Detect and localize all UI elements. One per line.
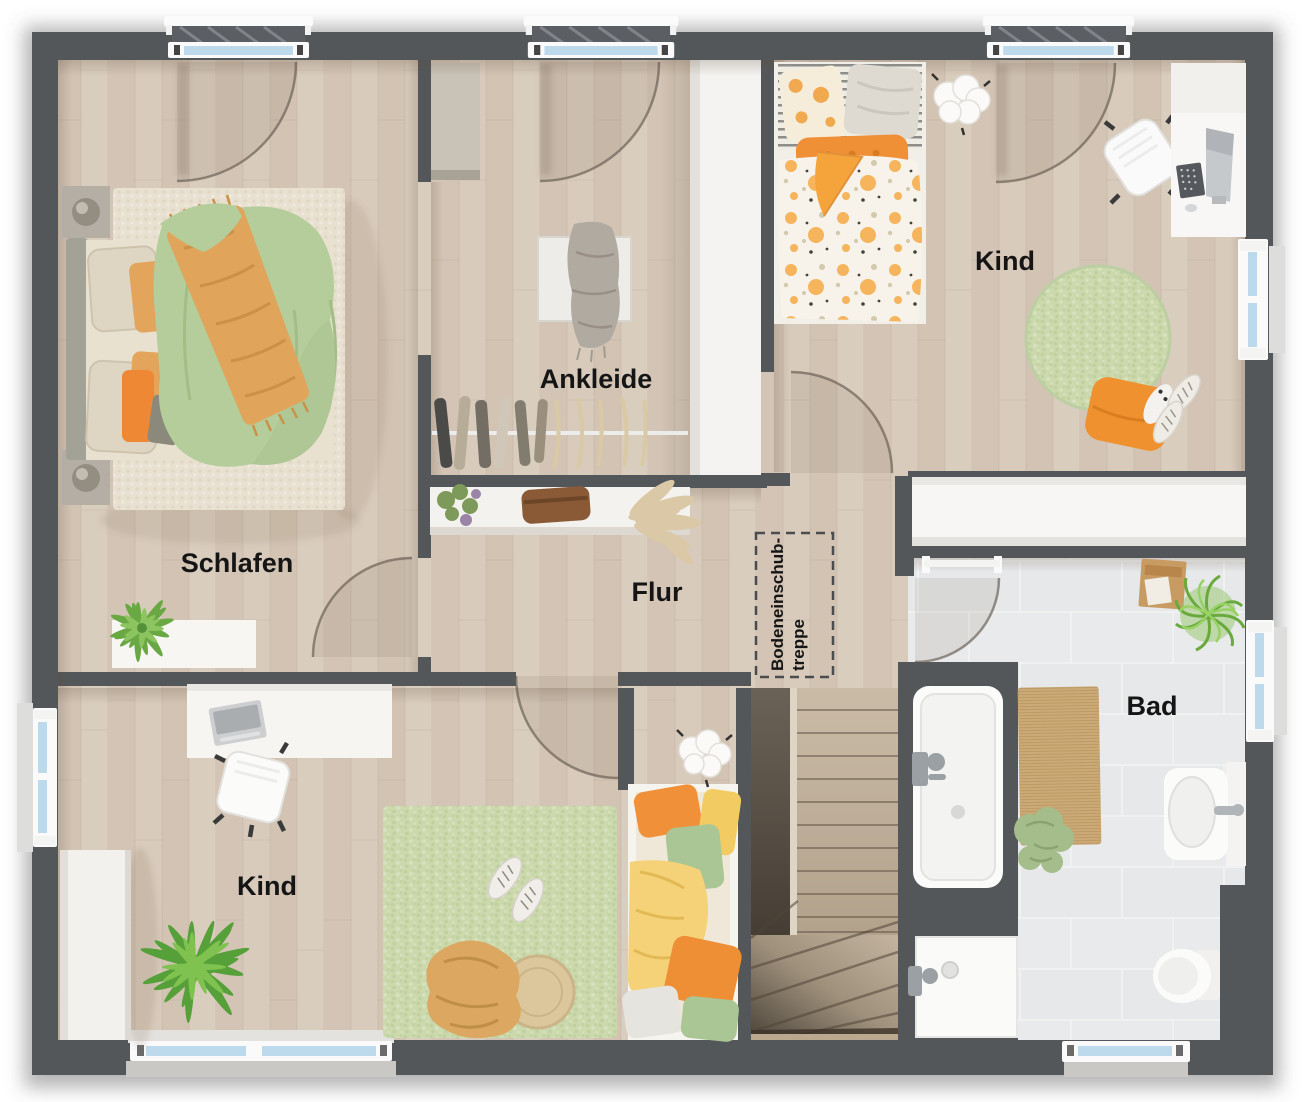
svg-text:Ankleide: Ankleide	[540, 364, 653, 394]
svg-text:Kind: Kind	[237, 871, 297, 901]
svg-text:Kind: Kind	[975, 246, 1035, 276]
svg-text:Bodeneinschub-: Bodeneinschub-	[768, 538, 787, 671]
svg-text:Bad: Bad	[1126, 691, 1177, 721]
svg-text:Schlafen: Schlafen	[181, 548, 294, 578]
svg-text:Flur: Flur	[632, 577, 683, 607]
svg-text:treppe: treppe	[789, 619, 808, 671]
